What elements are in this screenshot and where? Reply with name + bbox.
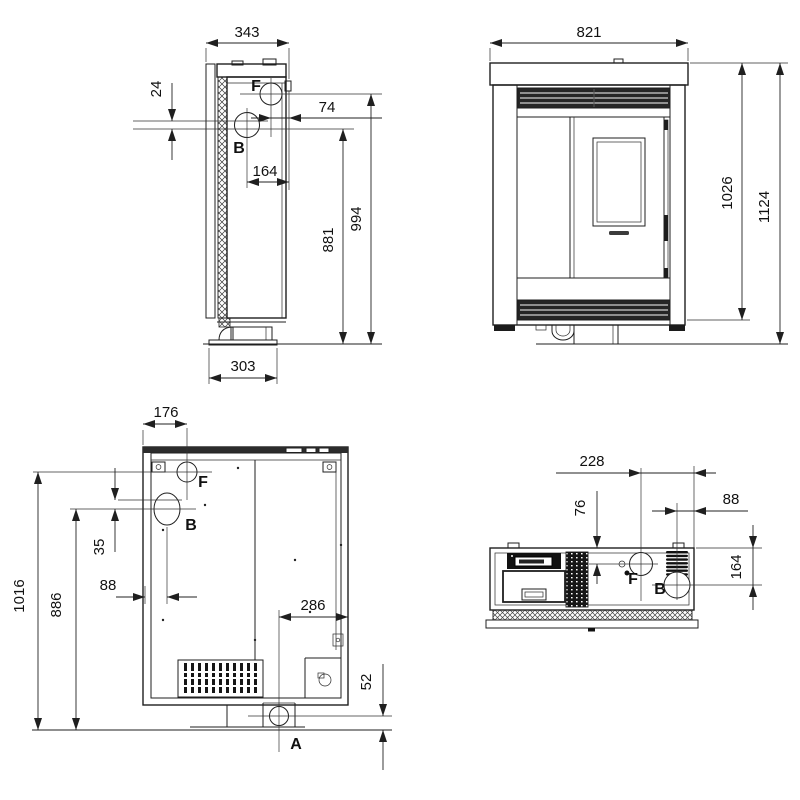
dim-front-width: 821 xyxy=(576,24,601,41)
dim-rear-height-f: 1016 xyxy=(11,579,28,612)
dim-rear-b-left: 88 xyxy=(100,577,117,594)
technical-drawing-page: F B 343 24 74 164 881 994 303 xyxy=(0,0,800,800)
front-view: 821 1026 1124 xyxy=(490,24,788,344)
front-body xyxy=(493,85,685,325)
dim-rear-a-right: 286 xyxy=(300,597,325,614)
top-grille xyxy=(518,88,670,108)
right-foot xyxy=(669,325,685,331)
hopper-lid xyxy=(503,571,565,602)
rear-port-b-label: B xyxy=(185,517,197,534)
port-b-label: B xyxy=(233,140,245,157)
top-cap xyxy=(217,64,286,77)
dim-front-height-total: 1124 xyxy=(756,191,773,223)
mount-bracket-right xyxy=(323,462,336,472)
control-display xyxy=(507,553,561,569)
rear-top-band xyxy=(143,447,348,453)
drain-detail xyxy=(319,674,331,686)
top-port-b-label: B xyxy=(654,581,666,598)
side-body xyxy=(227,77,286,318)
dim-top-b-right: 88 xyxy=(723,491,740,508)
left-foot xyxy=(494,325,515,331)
dim-top-b-front: 164 xyxy=(728,554,745,579)
dim-side-height-b: 881 xyxy=(320,227,337,252)
dim-side-depth-top: 343 xyxy=(234,24,259,41)
rear-view: A F B 176 35 88 286 52 886 1016 xyxy=(11,404,392,770)
rear-panel xyxy=(206,64,215,318)
stove-door xyxy=(570,117,664,278)
dim-side-b-front: 164 xyxy=(252,163,277,180)
bottom-grille xyxy=(518,300,670,320)
door-window xyxy=(593,138,645,226)
mount-bracket-left xyxy=(152,462,165,472)
dim-front-height-body: 1026 xyxy=(719,176,736,209)
dim-side-base-depth: 303 xyxy=(230,358,255,375)
rear-port-f-label: F xyxy=(198,474,208,491)
brand-mark xyxy=(609,231,629,235)
dim-rear-port-offset: 35 xyxy=(91,539,108,556)
dim-side-f-front: 74 xyxy=(319,99,336,116)
rear-vent-grille xyxy=(178,660,263,697)
rear-heatshield-hatch xyxy=(218,77,227,318)
front-top-cap xyxy=(490,63,688,85)
front-edge-hatch xyxy=(493,610,692,620)
air-intake-elbow xyxy=(552,325,574,340)
top-port-f-label: F xyxy=(628,571,638,588)
door-handle-slot xyxy=(664,120,668,278)
dim-rear-a-height: 52 xyxy=(358,674,375,691)
dim-rear-height-b: 886 xyxy=(48,592,65,617)
port-f-label: F xyxy=(251,78,261,95)
stove-dimension-drawing: F B 343 24 74 164 881 994 303 xyxy=(0,0,800,800)
dim-top-f-front: 76 xyxy=(572,500,589,517)
top-view: F B 228 88 76 164 xyxy=(486,453,762,632)
dim-rear-f-left: 176 xyxy=(153,404,178,421)
port-a-label: A xyxy=(290,736,302,753)
dim-side-port-offset: 24 xyxy=(148,81,165,98)
top-base-plate xyxy=(486,620,698,628)
side-view: F B 343 24 74 164 881 994 303 xyxy=(133,24,382,384)
pedestal xyxy=(574,325,618,344)
dim-side-height-f: 994 xyxy=(348,206,365,231)
side-grille-strip xyxy=(566,552,588,607)
dim-top-f-right: 228 xyxy=(579,453,604,470)
